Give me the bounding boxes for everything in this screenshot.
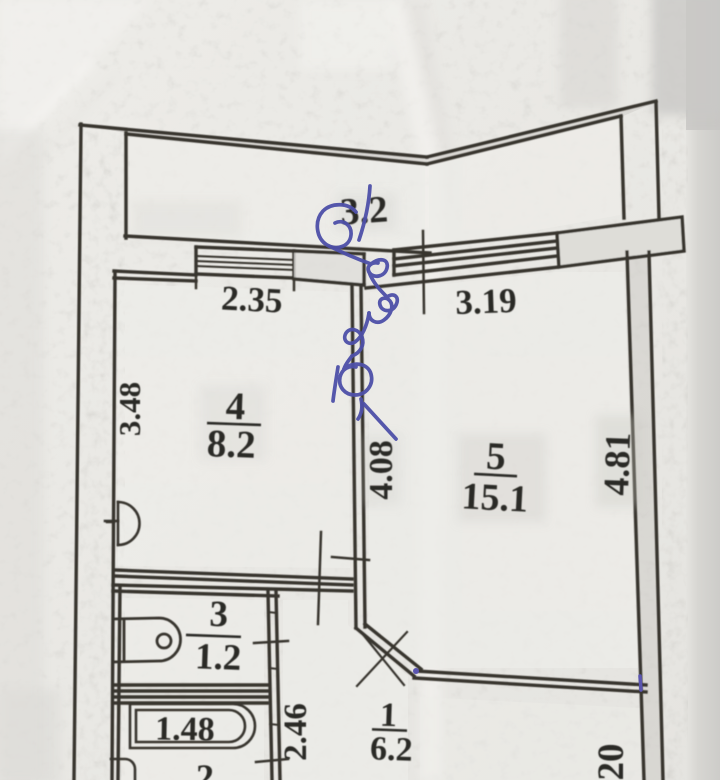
svg-text:15.1: 15.1 bbox=[461, 475, 530, 520]
svg-text:3.48: 3.48 bbox=[112, 382, 147, 436]
svg-text:3.19: 3.19 bbox=[455, 281, 518, 322]
svg-text:6.2: 6.2 bbox=[369, 730, 413, 768]
svg-text:2: 2 bbox=[196, 757, 214, 780]
svg-text:1.2: 1.2 bbox=[194, 636, 242, 679]
svg-text:5: 5 bbox=[485, 435, 507, 479]
svg-text:3: 3 bbox=[209, 594, 229, 636]
svg-text:4.81: 4.81 bbox=[596, 432, 638, 496]
svg-text:1.48: 1.48 bbox=[155, 710, 215, 748]
svg-text:8.2: 8.2 bbox=[206, 422, 256, 467]
svg-text:20: 20 bbox=[591, 744, 632, 780]
svg-text:2.46: 2.46 bbox=[278, 703, 314, 761]
svg-text:2.35: 2.35 bbox=[220, 278, 283, 320]
svg-text:4.08: 4.08 bbox=[363, 440, 400, 500]
